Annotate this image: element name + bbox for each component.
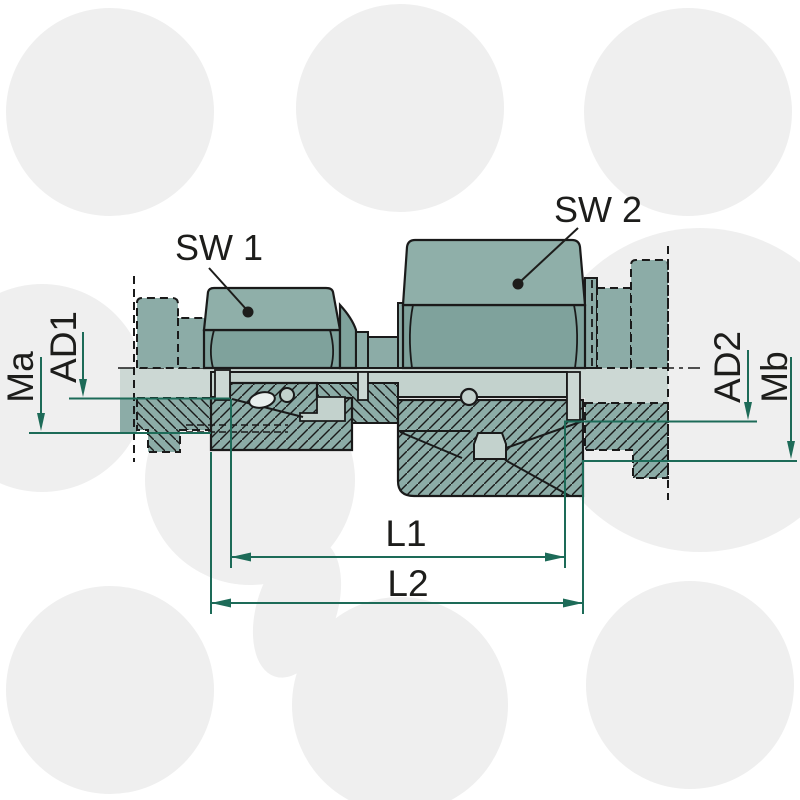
right-body-section — [398, 400, 583, 496]
technical-drawing-canvas: SW 1 SW 2 Ma AD1 AD2 Mb L1 L2 — [0, 0, 800, 800]
sw1-leader-dot — [243, 307, 254, 318]
label-ad1: AD1 — [43, 311, 84, 383]
coupling-drawing: SW 1 SW 2 Ma AD1 AD2 Mb L1 L2 — [0, 0, 800, 800]
left-break-stub — [120, 398, 137, 433]
right-nut-sw2 — [398, 240, 585, 368]
label-l1: L1 — [385, 513, 426, 554]
sw2-leader-dot — [513, 279, 524, 290]
label-ad2: AD2 — [707, 331, 748, 403]
center-body — [356, 332, 398, 368]
label-ma: Ma — [0, 351, 41, 403]
label-sw2: SW 2 — [554, 189, 642, 230]
o-ring-section — [461, 389, 477, 405]
left-nut-sw1 — [204, 288, 356, 368]
label-mb: Mb — [754, 351, 795, 402]
label-l2: L2 — [387, 563, 428, 604]
label-sw1: SW 1 — [175, 227, 263, 268]
